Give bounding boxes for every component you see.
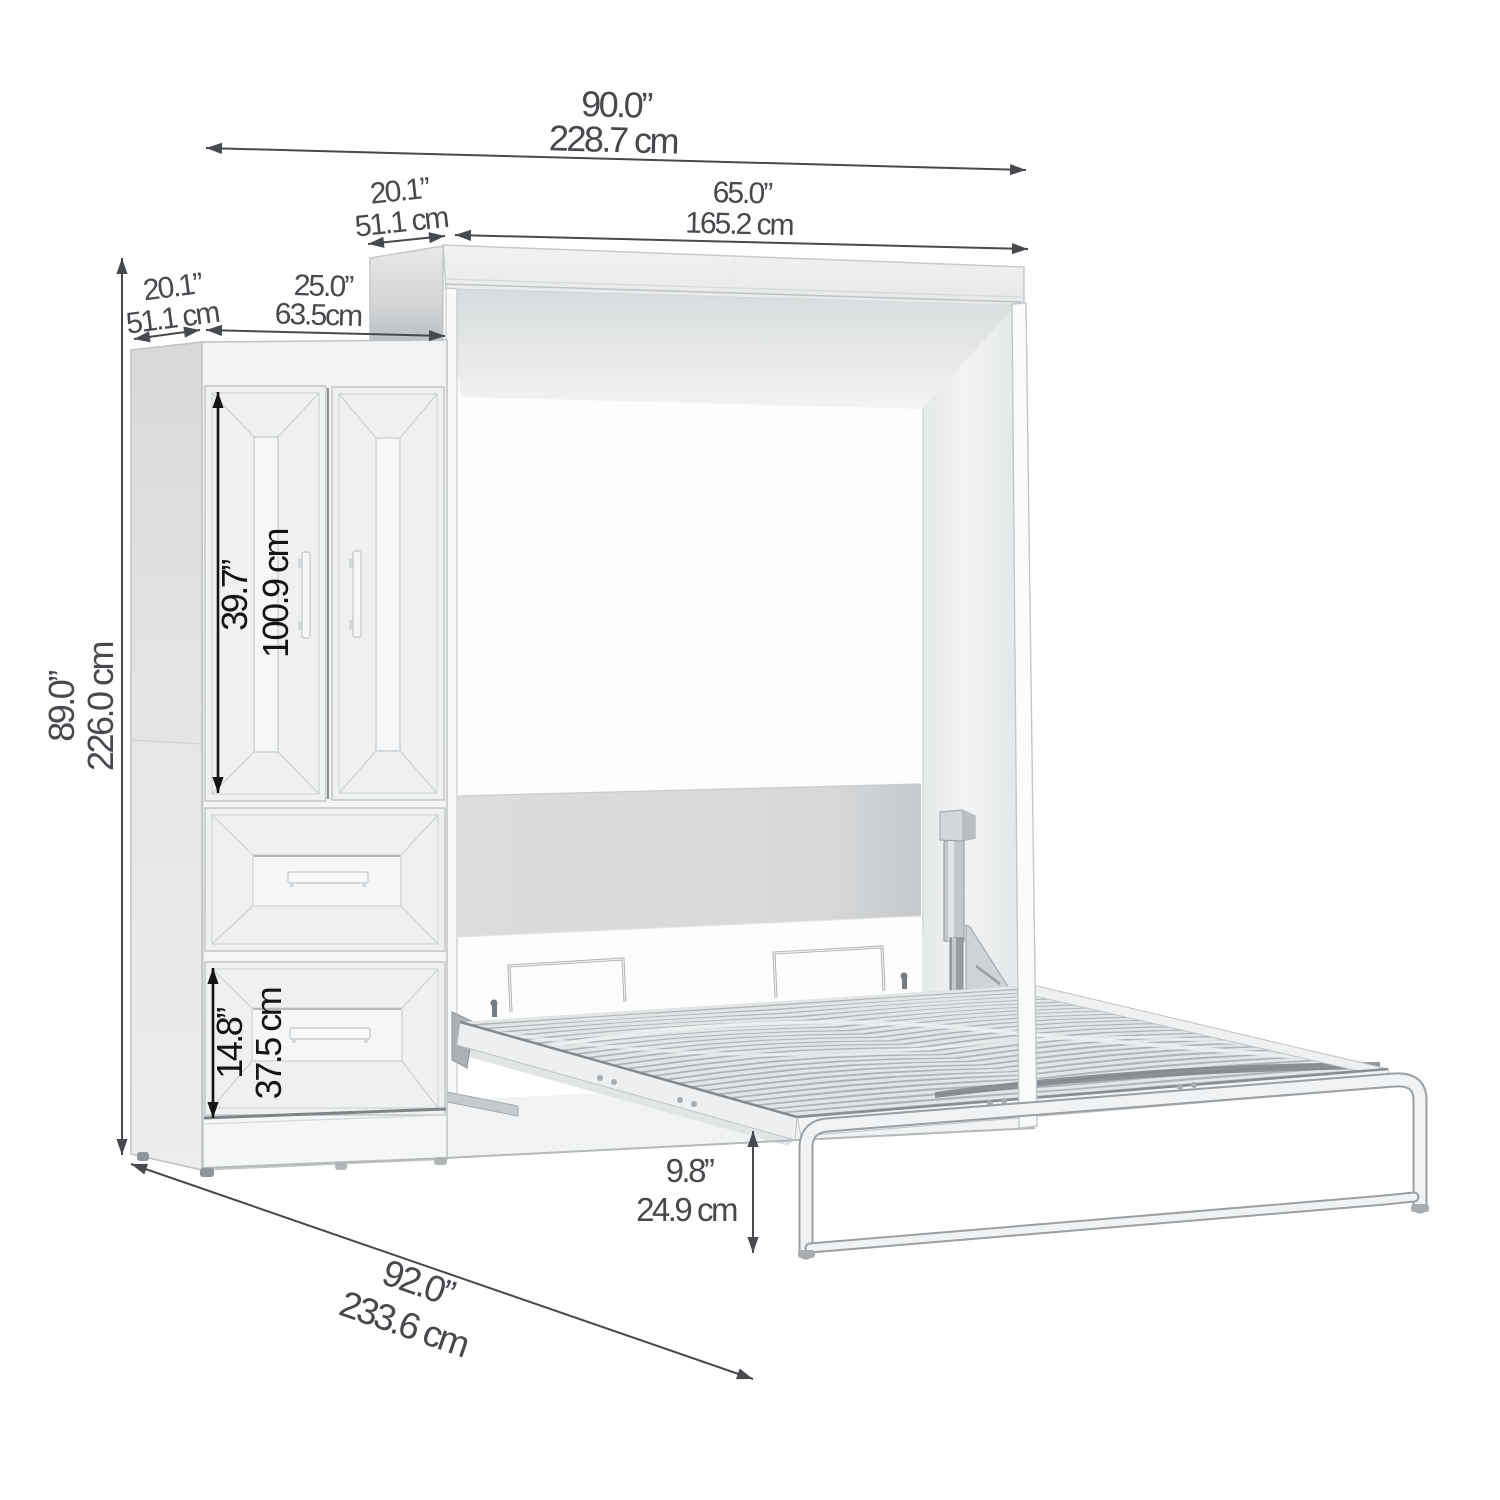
svg-text:226.0 cm: 226.0 cm [80,642,121,771]
svg-text:63.5cm: 63.5cm [274,298,362,334]
svg-text:165.2 cm: 165.2 cm [685,206,794,242]
svg-text:65.0”: 65.0” [712,176,772,210]
svg-text:100.9 cm: 100.9 cm [255,529,296,658]
svg-text:9.8”: 9.8” [666,1152,714,1189]
svg-text:37.5 cm: 37.5 cm [248,988,289,1099]
svg-text:14.8”: 14.8” [209,1008,250,1079]
svg-text:228.7 cm: 228.7 cm [548,117,678,161]
svg-text:24.9 cm: 24.9 cm [636,1191,737,1228]
svg-text:39.7”: 39.7” [214,560,255,631]
svg-text:89.0”: 89.0” [41,671,82,742]
